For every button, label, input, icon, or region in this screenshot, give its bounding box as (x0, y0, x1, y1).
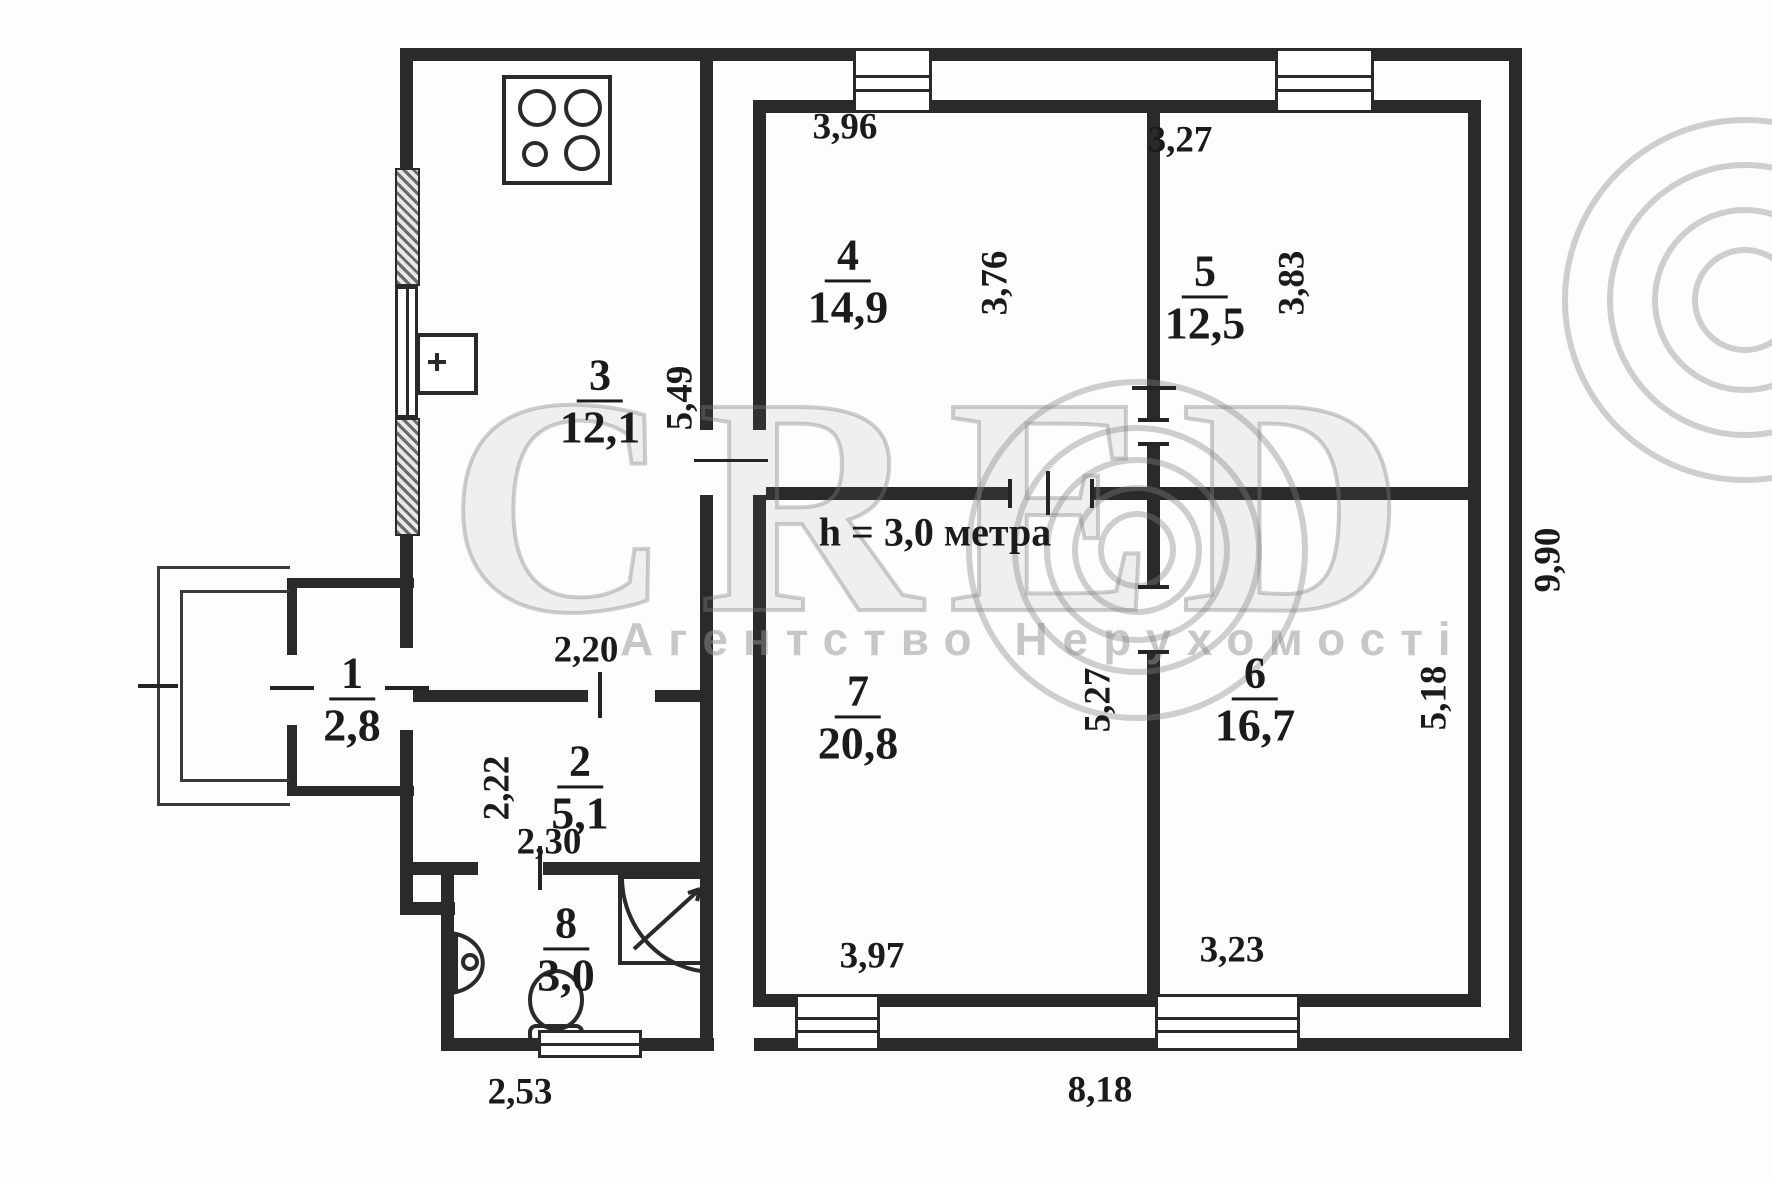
room-7-label: 7 20,8 (818, 667, 899, 768)
ceiling-height-note: h = 3,0 метра (819, 509, 1051, 556)
room-number: 4 (825, 231, 871, 282)
door-jamb (1008, 479, 1012, 508)
dim-room5-right: 3,83 (1271, 251, 1314, 316)
room-number: 2 (557, 737, 603, 788)
room-3-label: 3 12,1 (560, 351, 641, 452)
dim-bottom-left: 2,53 (488, 1071, 553, 1114)
wall-pier-hatch (395, 168, 420, 286)
stove-icon (502, 75, 612, 185)
room-number: 1 (329, 649, 375, 700)
room-8-label: 8 3,0 (537, 899, 595, 1000)
room-area: 12,1 (560, 402, 641, 453)
room-5-label: 5 12,5 (1165, 247, 1246, 348)
door-tick (598, 672, 602, 718)
dimension-tick (1132, 386, 1176, 390)
room-area: 2,8 (323, 700, 381, 751)
room-number: 8 (543, 899, 589, 950)
room-number: 6 (1232, 649, 1278, 700)
door-jamb (1138, 442, 1169, 446)
room-number: 7 (835, 667, 881, 718)
room-area: 12,5 (1165, 298, 1246, 349)
dim-room6-bottom: 3,23 (1200, 929, 1265, 972)
dim-room4-top: 3,96 (813, 106, 878, 149)
window (1155, 994, 1300, 1051)
window (795, 994, 880, 1051)
window (1275, 48, 1374, 113)
door-jamb (1138, 650, 1169, 654)
dim-bottom-total: 8,18 (1068, 1069, 1133, 1112)
room-area: 20,8 (818, 718, 899, 769)
window (538, 1030, 642, 1058)
room-4-label: 4 14,9 (808, 231, 889, 332)
dim-room6-right: 5,18 (1413, 666, 1456, 731)
room-area: 16,7 (1215, 700, 1296, 751)
dim-kitchen-passage: 2,20 (554, 629, 619, 672)
door-tick (270, 686, 314, 690)
dim-right-total: 9,90 (1527, 528, 1570, 593)
dim-room4-right: 3,76 (974, 251, 1017, 316)
dim-room5-top: 3,27 (1148, 119, 1213, 162)
door-tick (385, 686, 429, 690)
dimension-tick (138, 684, 178, 688)
bathroom-fixtures (0, 0, 1772, 1181)
dim-room2-height: 2,22 (476, 756, 519, 821)
wall-pier-hatch (395, 418, 420, 536)
door-jamb (1138, 418, 1169, 422)
room-number: 5 (1182, 247, 1228, 298)
dim-room7-bottom: 3,97 (840, 935, 905, 978)
door-threshold-tick (694, 459, 768, 462)
room-area: 3,0 (537, 950, 595, 1001)
room-number: 3 (577, 351, 623, 402)
floor-plan-scan: CRED Агентство Нерухомості (0, 0, 1772, 1181)
dim-room7-right: 5,27 (1077, 668, 1120, 733)
boiler-icon (416, 333, 478, 395)
dim-room2-width: 2,30 (517, 821, 582, 864)
window (395, 286, 418, 418)
dim-kitchen-height: 5,49 (659, 366, 702, 431)
door-jamb (1090, 479, 1094, 508)
window (853, 48, 932, 113)
door-jamb (1138, 585, 1169, 589)
room-1-label: 1 2,8 (323, 649, 381, 750)
room-area: 14,9 (808, 282, 889, 333)
room-6-label: 6 16,7 (1215, 649, 1296, 750)
